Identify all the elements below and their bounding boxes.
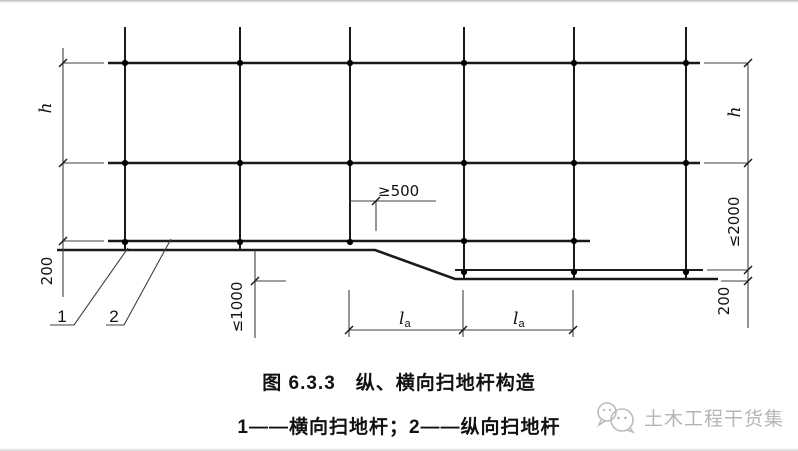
lower-sweeping-rod-stepped [57, 250, 718, 279]
watermark: 土木工程干货集 [594, 398, 794, 436]
dim-label-200-right: 200 [715, 287, 733, 316]
leader-label-2: 2 [109, 307, 118, 326]
leader-label-1: 1 [57, 307, 66, 326]
dim-label-ge500: ≥500 [378, 182, 419, 200]
drawing-page: h 200 ≥500 ≤1000 h ≤2000 200 la la 1 2 图… [0, 0, 798, 451]
dim-label-h-left: h [36, 103, 56, 114]
figure-caption: 图 6.3.3 纵、横向扫地杆构造 [0, 368, 798, 395]
dim-label-200-left: 200 [38, 257, 56, 286]
watermark-text: 土木工程干货集 [644, 404, 784, 431]
chat-faces-icon [594, 400, 638, 434]
dim-label-la-2: la [513, 309, 525, 330]
dim-label-le1000: ≤1000 [228, 282, 246, 333]
coupler-nodes [122, 60, 689, 275]
dim-label-la-1: la [399, 309, 411, 330]
scaffold-sweeping-rod-diagram: h 200 ≥500 ≤1000 h ≤2000 200 la la 1 2 [0, 0, 798, 360]
scan-edge-top [0, 0, 798, 3]
ledger-rods [57, 63, 718, 279]
dim-label-h-right: h [725, 107, 745, 118]
dim-label-le2000: ≤2000 [725, 197, 743, 248]
